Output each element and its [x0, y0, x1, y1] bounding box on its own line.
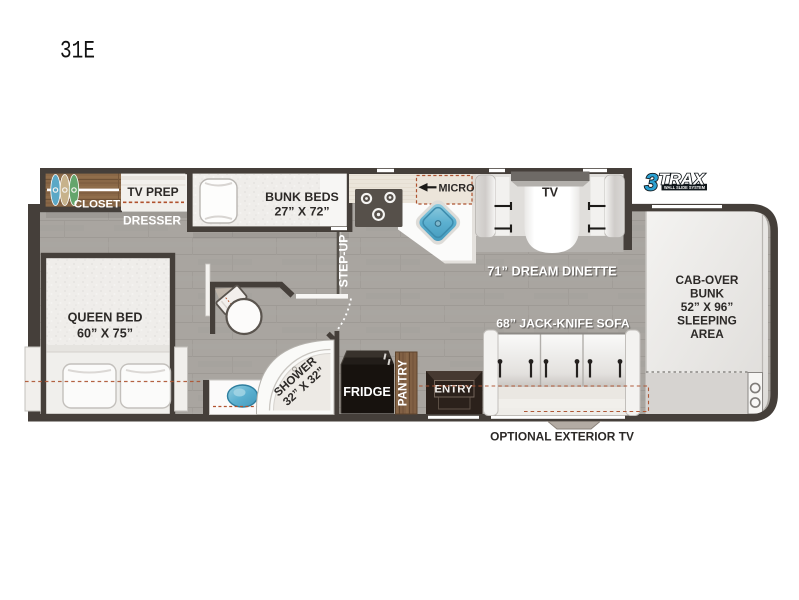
svg-text:STEP-UP: STEP-UP: [337, 235, 351, 288]
svg-text:FRIDGE: FRIDGE: [343, 385, 391, 399]
svg-text:BUNK BEDS: BUNK BEDS: [265, 190, 339, 204]
svg-text:71” DREAM DINETTE: 71” DREAM DINETTE: [487, 264, 617, 279]
svg-text:TV: TV: [542, 186, 559, 200]
svg-text:3: 3: [645, 169, 659, 196]
svg-text:MICRO: MICRO: [439, 182, 475, 194]
svg-text:CLOSET: CLOSET: [74, 199, 120, 211]
svg-text:OPTIONAL EXTERIOR TV: OPTIONAL EXTERIOR TV: [490, 430, 634, 444]
svg-text:TRAX: TRAX: [659, 171, 707, 188]
svg-text:QUEEN BED: QUEEN BED: [68, 311, 143, 325]
svg-text:68” JACK-KNIFE SOFA: 68” JACK-KNIFE SOFA: [496, 317, 630, 331]
svg-text:BUNK: BUNK: [690, 287, 725, 301]
svg-text:52” X 96”: 52” X 96”: [681, 300, 734, 314]
svg-text:PANTRY: PANTRY: [397, 360, 410, 407]
svg-text:AREA: AREA: [690, 327, 724, 341]
svg-text:ENTRY: ENTRY: [434, 384, 473, 396]
svg-text:SLEEPING: SLEEPING: [677, 314, 737, 328]
svg-text:CAB-OVER: CAB-OVER: [676, 273, 739, 287]
svg-text:31E: 31E: [60, 37, 95, 66]
svg-text:60” X 75”: 60” X 75”: [77, 327, 133, 341]
svg-text:27” X 72”: 27” X 72”: [274, 205, 329, 219]
svg-text:TV PREP: TV PREP: [127, 185, 178, 199]
svg-text:DRESSER: DRESSER: [123, 214, 181, 228]
